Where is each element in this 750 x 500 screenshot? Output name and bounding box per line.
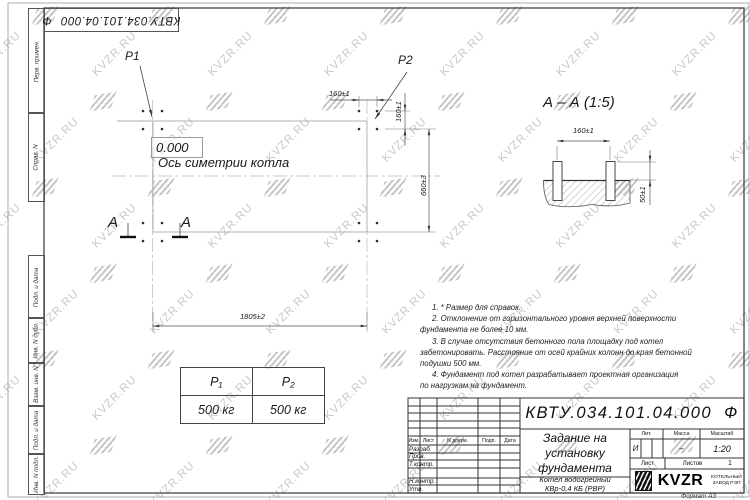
row-utv: Утв. — [409, 485, 439, 493]
load-table-value-p2: 500 кг — [253, 396, 325, 423]
kvzr-logo-caption: КОТЕЛЬНЫЙ ЗАВОД РЭП — [709, 471, 744, 491]
note-line: 1. * Размер для справок. — [420, 302, 750, 313]
row-nkontr: Н.контр. — [409, 478, 439, 485]
lit-value: И — [630, 439, 641, 458]
margin-cell-sprav-n: Справ. N — [28, 112, 45, 202]
notes-block: 1. * Размер для справок. 2. Отклонение о… — [420, 302, 750, 392]
title-block-product: Котел водогрейный КВр-0,4 КБ (РВР) — [521, 477, 629, 492]
top-stamp-doc-number: КВТУ.034.101.04.000Ф — [44, 8, 179, 32]
load-table-header-p2: P₂ — [253, 368, 325, 396]
format-label: Формат А3 — [681, 493, 716, 500]
note-line: 4. Фундамент под котел разрабатывает про… — [420, 369, 750, 380]
stamp-doc-number: КВТУ.034.101.04.000 — [61, 14, 181, 26]
sheets-label: Листов — [665, 458, 720, 469]
col-data: Дата — [500, 436, 520, 445]
plan-view — [112, 66, 440, 332]
scale-value: 1:20 — [700, 439, 744, 458]
row-prov: Пров. — [409, 453, 439, 460]
note-line: по нагрузкам на фундамент. — [420, 380, 750, 391]
col-izm: Изм. — [408, 436, 420, 445]
dim-160-side-label: 160±1 — [394, 101, 403, 122]
margin-cell-podp-data-2: Подп. и дата — [28, 405, 45, 455]
dim-160-top-label: 160±1 — [329, 89, 350, 98]
p1-leader — [140, 66, 152, 117]
col-ndokum: N докум. — [437, 436, 478, 445]
drawing-sheet: KVZR.RUKVZR.RUKVZR.RUKVZR.RUKVZR.RUKVZR.… — [0, 0, 750, 500]
note-line: забетонировать. Расстояние от осей крайн… — [420, 347, 750, 358]
title-block-title: Задание на установку фундамента — [521, 430, 629, 476]
row-razrab: Разраб. — [409, 445, 439, 453]
section-letter-right: A — [181, 214, 191, 231]
margin-cell-inv-podl: Инв. N подл. — [28, 453, 45, 495]
boiler-axis-label: Ось симетрии котла — [158, 155, 289, 170]
margin-cell-vzam-inv: Взам. инв. N — [28, 362, 45, 407]
note-line: 3. В случае отсутствия бетонного пола пл… — [420, 336, 750, 347]
margin-cell-inv-dubl: Инв. N дубл. — [28, 317, 45, 364]
lit-header: Лит. — [630, 429, 663, 439]
col-list: Лист — [420, 436, 437, 445]
stamp-doc-suffix: Ф — [42, 14, 52, 26]
sheets-value: 1 — [720, 458, 740, 469]
sheet-label: Лист — [630, 458, 665, 469]
load-point-p1-label: P1 — [125, 49, 140, 63]
kvzr-logo-text: KVZR — [652, 469, 709, 493]
load-table-value-p1: 500 кг — [181, 396, 253, 423]
margin-cell-podp-data-1: Подп. и дата — [28, 255, 45, 319]
mass-value: – — [663, 439, 700, 458]
load-point-p2-label: P2 — [398, 53, 413, 67]
kvzr-emblem-icon — [635, 471, 652, 491]
note-line: фундамента не более 10 мм. — [420, 324, 750, 335]
load-table: P₁ P₂ 500 кг 500 кг — [180, 367, 325, 424]
section-dim-50-label: 50±1 — [638, 186, 647, 203]
row-tkontr: Т.контр. — [409, 460, 439, 468]
dim-660-label: 660±3 — [419, 175, 428, 196]
load-table-header-p1: P₁ — [181, 368, 253, 396]
col-podp: Подп. — [478, 436, 500, 445]
dim-1805-label: 1805±2 — [240, 312, 265, 321]
note-line: подушки 500 мм. — [420, 358, 750, 369]
mass-header: Масса — [663, 429, 700, 439]
title-block-doc-number: КВТУ.034.101.04.000Ф — [521, 399, 743, 428]
scale-header: Масштаб — [700, 429, 744, 439]
section-dim-160-label: 160±1 — [573, 126, 594, 135]
section-letter-left: A — [108, 214, 118, 231]
section-title: А – А (1:5) — [543, 94, 615, 111]
bolt-right — [606, 162, 615, 201]
section-cut-marks — [120, 223, 188, 237]
note-line: 2. Отклонение от горизонтального уровня … — [420, 313, 750, 324]
bolt-left — [553, 162, 562, 201]
